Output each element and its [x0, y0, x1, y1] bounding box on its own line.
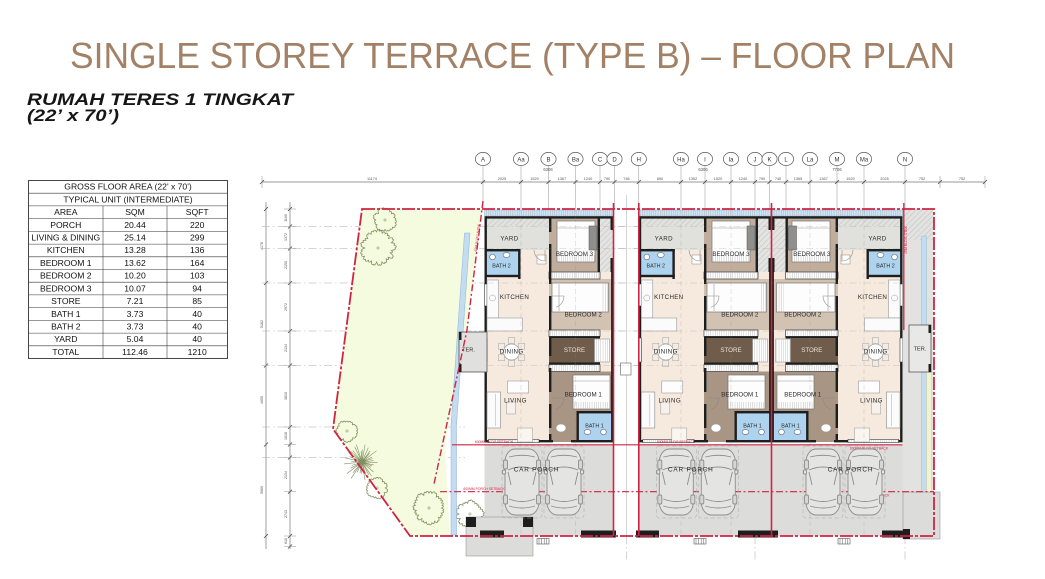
svg-text:BEDROOM 2: BEDROOM 2 [784, 312, 822, 319]
svg-text:KITCHEN: KITCHEN [47, 245, 85, 255]
svg-text:20.44: 20.44 [124, 220, 146, 230]
svg-text:790: 790 [759, 177, 765, 181]
svg-text:BEDROOM 2: BEDROOM 2 [721, 312, 759, 319]
svg-text:STORE: STORE [801, 347, 822, 354]
svg-text:BATH 2: BATH 2 [647, 264, 665, 270]
svg-text:5.04: 5.04 [127, 334, 144, 344]
svg-text:D: D [612, 157, 617, 163]
svg-text:DINING: DINING [499, 349, 523, 356]
svg-text:TOTAL: TOTAL [52, 347, 79, 357]
svg-text:BATH 1: BATH 1 [781, 424, 799, 430]
svg-text:BEDROOM 1: BEDROOM 1 [40, 258, 92, 268]
svg-text:DINING: DINING [654, 349, 678, 356]
svg-text:600MM BLDG SETBACK: 600MM BLDG SETBACK [657, 440, 696, 444]
svg-text:2150: 2150 [284, 261, 288, 269]
svg-text:B: B [546, 157, 550, 163]
svg-text:1367: 1367 [819, 177, 827, 181]
svg-text:Ha: Ha [677, 157, 685, 163]
svg-text:4650: 4650 [260, 396, 264, 404]
svg-text:2972: 2972 [284, 303, 288, 311]
svg-text:YARD: YARD [54, 334, 77, 344]
svg-text:746: 746 [623, 177, 629, 181]
svg-text:BATH 1: BATH 1 [51, 309, 81, 319]
svg-text:A: A [481, 157, 485, 163]
svg-text:TER.: TER. [914, 347, 927, 353]
svg-text:C: C [598, 157, 603, 163]
svg-text:13.28: 13.28 [124, 245, 146, 255]
svg-text:BEDROOM 2: BEDROOM 2 [40, 271, 92, 281]
svg-text:CAR PORCH: CAR PORCH [828, 467, 874, 474]
svg-text:STORE: STORE [51, 296, 81, 306]
svg-text:6306: 6306 [543, 167, 553, 172]
svg-text:TER.: TER. [462, 348, 475, 354]
svg-text:40: 40 [192, 322, 202, 332]
svg-text:5660: 5660 [260, 486, 264, 494]
svg-text:10.07: 10.07 [124, 283, 146, 293]
svg-text:103: 103 [190, 271, 205, 281]
svg-text:La: La [807, 157, 814, 163]
svg-text:BATH 2: BATH 2 [876, 264, 894, 270]
svg-text:BATH 1: BATH 1 [743, 424, 761, 430]
svg-text:BATH 2: BATH 2 [51, 322, 81, 332]
svg-text:1100: 1100 [284, 214, 288, 222]
svg-text:5182: 5182 [260, 320, 264, 328]
svg-text:STORE: STORE [564, 347, 585, 354]
svg-text:BEDROOM 1: BEDROOM 1 [784, 392, 822, 399]
svg-text:2025: 2025 [880, 177, 888, 181]
svg-text:BEDROOM 1: BEDROOM 1 [565, 392, 603, 399]
svg-text:KITCHEN: KITCHEN [858, 294, 887, 301]
svg-text:40: 40 [192, 334, 202, 344]
svg-text:DINING: DINING [863, 349, 887, 356]
svg-text:11174: 11174 [367, 177, 377, 181]
svg-text:790: 790 [604, 177, 610, 181]
svg-text:2134: 2134 [284, 344, 288, 352]
svg-text:25.14: 25.14 [124, 233, 146, 243]
svg-text:45M BLDG STBK: 45M BLDG STBK [904, 225, 908, 254]
svg-text:1352: 1352 [689, 177, 697, 181]
svg-text:6306: 6306 [698, 167, 708, 172]
svg-text:PORCH: PORCH [50, 220, 81, 230]
svg-text:1520: 1520 [530, 177, 538, 181]
svg-text:SQFT: SQFT [186, 207, 210, 217]
svg-text:KITCHEN: KITCHEN [500, 294, 529, 301]
svg-text:LIVING: LIVING [860, 398, 883, 405]
svg-text:Ma: Ma [860, 157, 869, 163]
svg-text:112.46: 112.46 [122, 347, 148, 357]
svg-text:(22’ x 70’): (22’ x 70’) [27, 107, 120, 125]
svg-text:136: 136 [190, 245, 205, 255]
svg-text:1372: 1372 [284, 233, 288, 241]
svg-text:4178: 4178 [260, 242, 264, 250]
svg-text:600MM BLDG SETBACK: 600MM BLDG SETBACK [475, 440, 514, 444]
svg-text:GROSS FLOOR AREA (22' x 70'): GROSS FLOOR AREA (22' x 70') [64, 182, 192, 192]
svg-text:SQM: SQM [125, 207, 145, 217]
svg-text:LIVING: LIVING [504, 398, 527, 405]
svg-text:610: 610 [284, 538, 288, 544]
svg-text:BEDROOM 3: BEDROOM 3 [793, 251, 831, 258]
svg-text:H: H [637, 157, 641, 163]
svg-text:1240: 1240 [584, 177, 592, 181]
svg-text:YARD: YARD [655, 236, 673, 243]
svg-text:BEDROOM 3: BEDROOM 3 [40, 283, 92, 293]
svg-text:10.20: 10.20 [124, 271, 146, 281]
svg-text:600MM PORCH SETBACK: 600MM PORCH SETBACK [463, 487, 505, 491]
svg-text:BATH 2: BATH 2 [492, 264, 510, 270]
svg-text:299: 299 [190, 233, 205, 243]
svg-text:40: 40 [192, 309, 202, 319]
svg-text:CAR PORCH: CAR PORCH [668, 467, 714, 474]
svg-text:N: N [903, 157, 907, 163]
svg-text:1016: 1016 [284, 432, 288, 440]
svg-text:Aa: Aa [517, 157, 525, 163]
svg-text:13.62: 13.62 [124, 258, 146, 268]
svg-text:BATH 1: BATH 1 [585, 424, 603, 430]
svg-text:LIVING & DINING: LIVING & DINING [31, 233, 100, 243]
svg-text:TYPICAL UNIT (INTERMEDIATE): TYPICAL UNIT (INTERMEDIATE) [63, 194, 192, 204]
svg-text:K: K [767, 157, 771, 163]
svg-text:BEDROOM 2: BEDROOM 2 [565, 312, 603, 319]
svg-text:1520: 1520 [846, 177, 854, 181]
svg-text:2743: 2743 [284, 510, 288, 518]
svg-text:BEDROOM 1: BEDROOM 1 [721, 392, 759, 399]
svg-text:BEDROOM 3: BEDROOM 3 [556, 251, 594, 258]
svg-text:YARD: YARD [868, 236, 886, 243]
svg-text:94: 94 [192, 283, 202, 293]
svg-text:YARD: YARD [500, 236, 518, 243]
svg-text:M: M [835, 157, 840, 163]
svg-text:7706: 7706 [832, 167, 842, 172]
svg-text:85: 85 [192, 296, 202, 306]
svg-text:3810: 3810 [284, 392, 288, 400]
svg-text:1240: 1240 [739, 177, 747, 181]
svg-text:LIVING: LIVING [658, 398, 681, 405]
svg-text:7.21: 7.21 [127, 296, 144, 306]
svg-text:2134: 2134 [284, 471, 288, 479]
svg-text:740: 740 [775, 177, 781, 181]
svg-text:Ba: Ba [572, 157, 580, 163]
svg-text:752: 752 [959, 177, 965, 181]
svg-text:1367: 1367 [558, 177, 566, 181]
svg-text:3.73: 3.73 [127, 309, 144, 319]
svg-text:1210: 1210 [188, 347, 207, 357]
svg-text:CAR PORCH: CAR PORCH [514, 467, 560, 474]
svg-text:AREA: AREA [54, 207, 78, 217]
svg-text:220: 220 [190, 220, 205, 230]
svg-text:3.73: 3.73 [127, 322, 144, 332]
svg-text:164: 164 [190, 258, 205, 268]
svg-text:SINGLE STOREY TERRACE (TYPE B): SINGLE STOREY TERRACE (TYPE B) – FLOOR P… [70, 35, 955, 76]
svg-text:1365: 1365 [794, 177, 802, 181]
svg-text:Ia: Ia [728, 157, 734, 163]
svg-text:890: 890 [657, 177, 663, 181]
svg-text:J: J [754, 157, 757, 163]
svg-text:752: 752 [919, 177, 925, 181]
svg-text:BEDROOM 3: BEDROOM 3 [712, 251, 750, 258]
svg-text:KITCHEN: KITCHEN [654, 294, 683, 301]
svg-text:1520: 1520 [714, 177, 722, 181]
svg-text:2025: 2025 [498, 177, 506, 181]
